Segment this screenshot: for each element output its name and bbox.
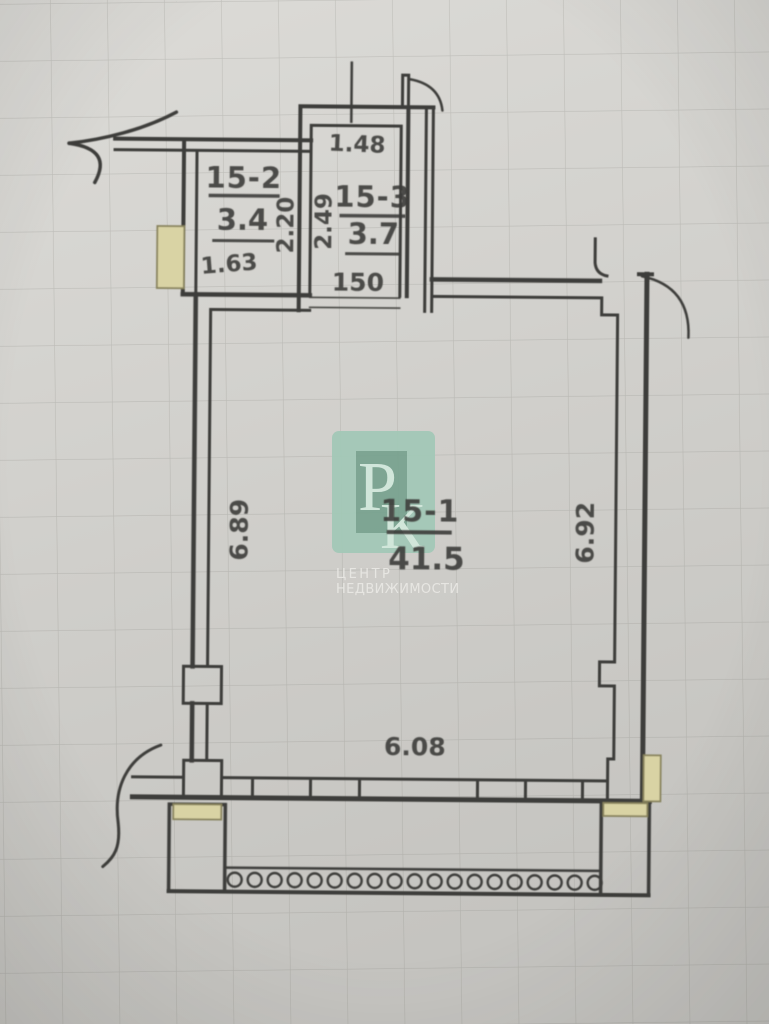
photo-vignette	[0, 0, 769, 1024]
floor-plan-photo: Р К ЦЕНТР НЕДВИЖИМОСТИ 15-2 3.4 1.63 2.2…	[0, 0, 769, 1024]
floor-plan-svg: Р К ЦЕНТР НЕДВИЖИМОСТИ 15-2 3.4 1.63 2.2…	[0, 0, 769, 1024]
